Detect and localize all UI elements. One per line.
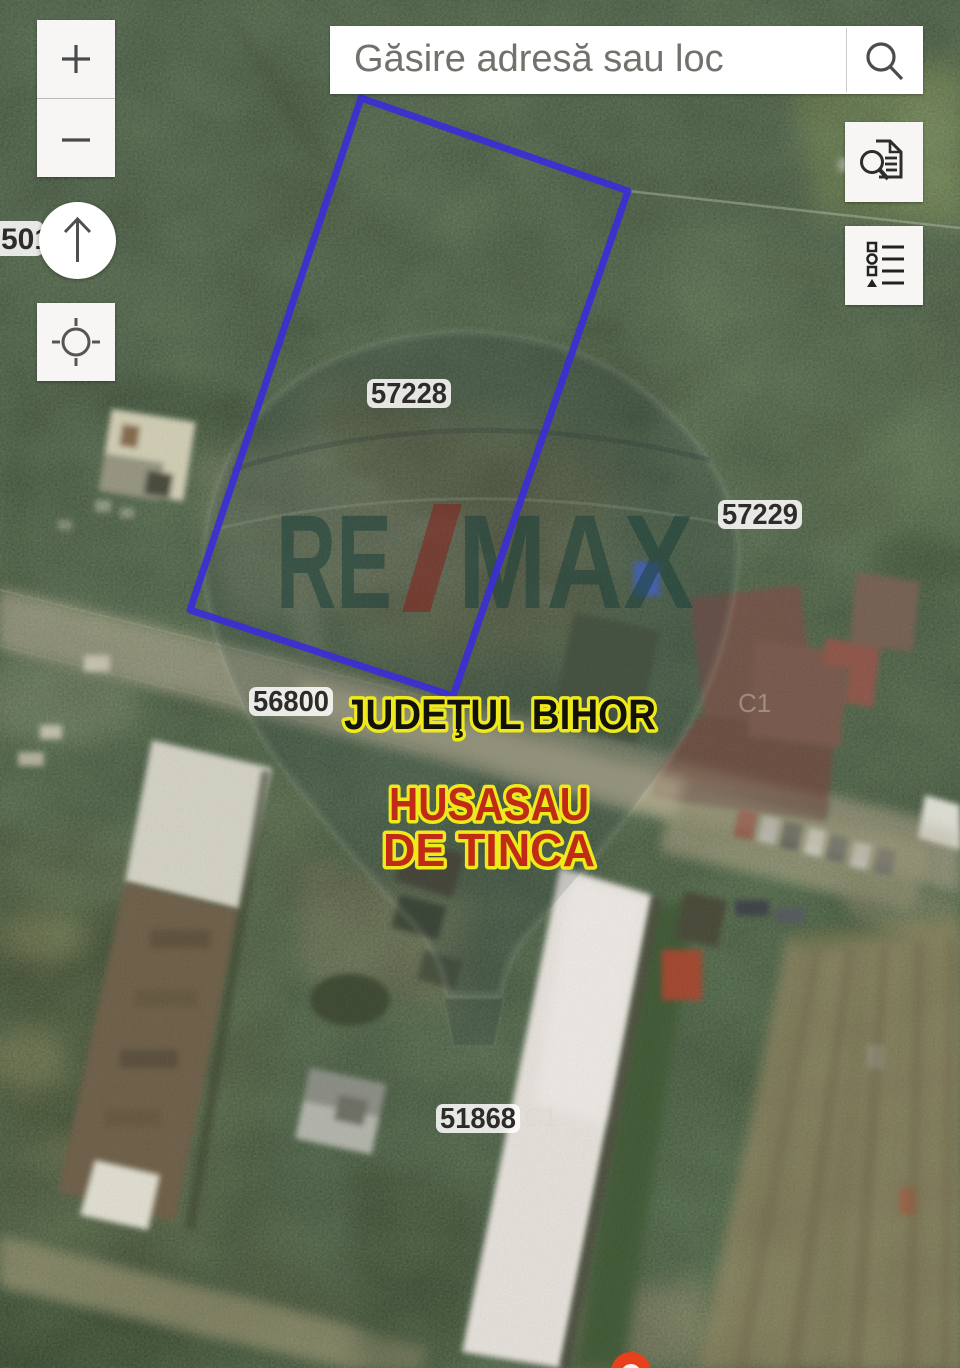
svg-text:HUSASAU: HUSASAU (389, 778, 589, 830)
svg-text:57229: 57229 (722, 499, 798, 531)
svg-text:MAX: MAX (458, 488, 694, 637)
svg-text:57228: 57228 (371, 378, 447, 410)
svg-text:JUDEŢUL BIHOR: JUDEŢUL BIHOR (344, 691, 656, 739)
svg-text:C1: C1 (524, 1102, 557, 1132)
svg-text:C1: C1 (738, 688, 771, 718)
svg-text:56800: 56800 (253, 686, 329, 718)
svg-text:RE: RE (276, 488, 392, 637)
svg-text:51868: 51868 (440, 1103, 516, 1135)
svg-text:DE TINCA: DE TINCA (383, 824, 595, 876)
